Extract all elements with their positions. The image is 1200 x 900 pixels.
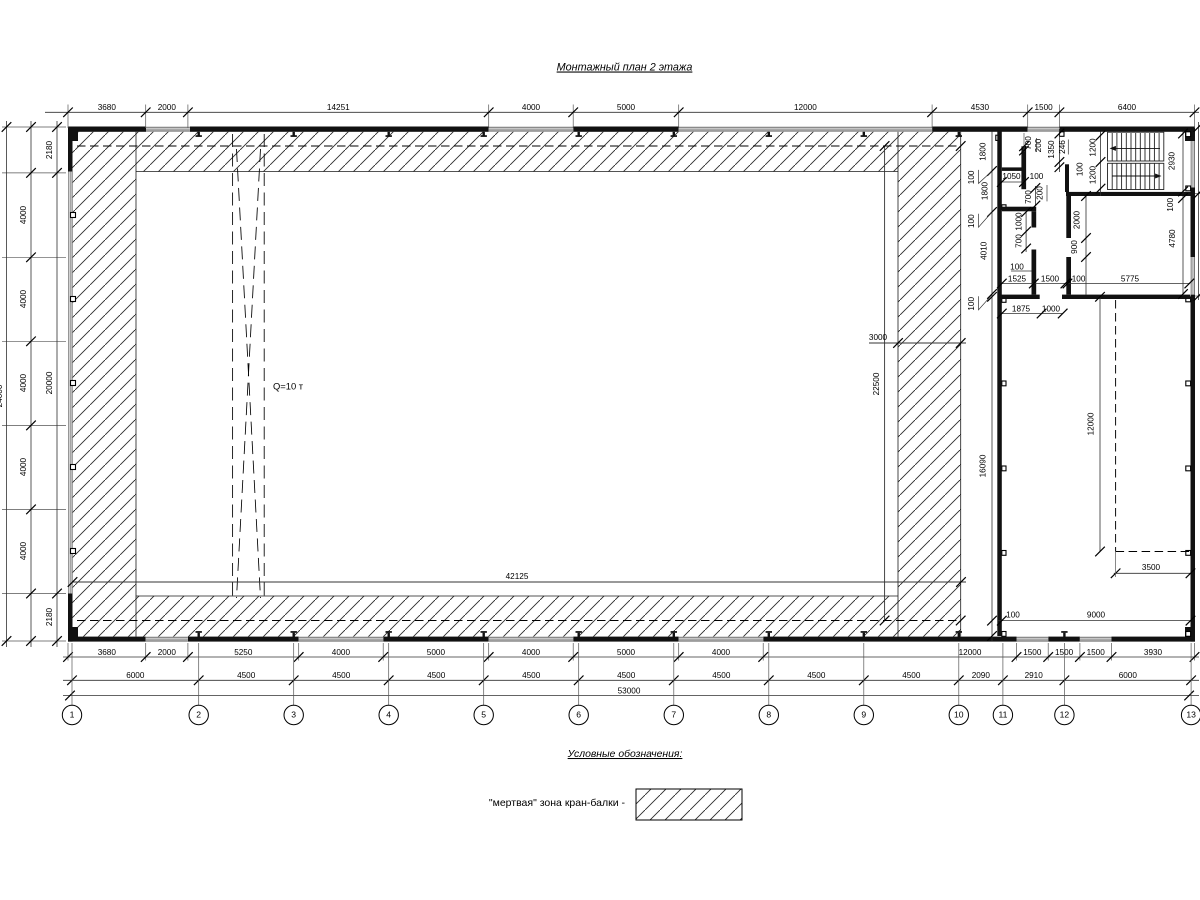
- svg-text:3: 3: [291, 710, 296, 720]
- svg-text:14251: 14251: [327, 103, 350, 112]
- svg-text:4000: 4000: [522, 648, 541, 657]
- svg-text:2000: 2000: [158, 103, 177, 112]
- svg-text:700: 700: [1024, 190, 1033, 204]
- svg-text:9: 9: [861, 710, 866, 720]
- svg-text:2000: 2000: [1073, 210, 1082, 229]
- svg-text:4500: 4500: [807, 671, 826, 680]
- svg-text:24000: 24000: [0, 384, 4, 407]
- svg-text:5: 5: [481, 710, 486, 720]
- svg-text:13: 13: [1186, 710, 1196, 720]
- svg-text:3680: 3680: [98, 103, 117, 112]
- svg-text:200: 200: [1036, 186, 1045, 200]
- svg-text:900: 900: [1070, 240, 1079, 254]
- svg-text:5000: 5000: [617, 648, 636, 657]
- svg-text:6000: 6000: [126, 671, 145, 680]
- svg-text:2180: 2180: [45, 607, 54, 626]
- svg-text:100: 100: [967, 297, 976, 311]
- svg-text:4000: 4000: [332, 648, 351, 657]
- svg-text:2000: 2000: [158, 648, 177, 657]
- svg-text:100: 100: [1030, 172, 1044, 181]
- svg-text:100: 100: [1166, 198, 1175, 212]
- svg-text:1875: 1875: [1012, 304, 1031, 313]
- svg-text:7: 7: [671, 710, 676, 720]
- svg-text:700: 700: [1015, 234, 1024, 248]
- svg-text:1000: 1000: [1015, 212, 1024, 231]
- svg-text:1: 1: [70, 710, 75, 720]
- svg-text:3000: 3000: [869, 333, 888, 342]
- svg-text:5000: 5000: [617, 103, 636, 112]
- svg-text:4000: 4000: [19, 373, 28, 392]
- svg-text:22500: 22500: [872, 372, 881, 395]
- svg-text:5775: 5775: [1121, 274, 1140, 283]
- svg-text:4000: 4000: [19, 541, 28, 560]
- svg-text:4000: 4000: [522, 103, 541, 112]
- svg-text:1500: 1500: [1041, 274, 1060, 283]
- svg-text:4500: 4500: [427, 671, 446, 680]
- svg-text:6000: 6000: [1119, 671, 1138, 680]
- svg-text:100: 100: [1072, 274, 1086, 283]
- svg-text:42125: 42125: [506, 572, 529, 581]
- svg-text:3500: 3500: [1142, 563, 1161, 572]
- svg-text:6400: 6400: [1118, 103, 1137, 112]
- svg-text:4010: 4010: [980, 241, 989, 260]
- svg-text:4500: 4500: [332, 671, 351, 680]
- svg-text:4780: 4780: [1168, 229, 1177, 248]
- svg-text:700: 700: [1024, 136, 1033, 150]
- svg-text:4500: 4500: [237, 671, 256, 680]
- svg-text:4500: 4500: [712, 671, 731, 680]
- svg-text:1500: 1500: [1034, 103, 1053, 112]
- svg-text:4000: 4000: [19, 289, 28, 308]
- svg-text:100: 100: [967, 214, 976, 228]
- svg-text:1500: 1500: [1087, 648, 1106, 657]
- svg-text:100: 100: [1006, 611, 1020, 620]
- svg-text:100: 100: [1076, 162, 1085, 176]
- svg-text:12000: 12000: [1087, 412, 1096, 435]
- svg-text:5250: 5250: [234, 648, 253, 657]
- svg-text:1050: 1050: [1002, 172, 1021, 181]
- svg-text:3680: 3680: [98, 648, 117, 657]
- svg-text:4500: 4500: [617, 671, 636, 680]
- svg-text:4530: 4530: [971, 103, 990, 112]
- svg-text:1525: 1525: [1008, 274, 1027, 283]
- svg-text:Монтажный план 2 этажа: Монтажный план 2 этажа: [557, 62, 693, 74]
- svg-text:53000: 53000: [618, 686, 641, 695]
- svg-text:1200: 1200: [1089, 138, 1098, 157]
- svg-text:2180: 2180: [45, 140, 54, 159]
- svg-text:100: 100: [1010, 263, 1024, 272]
- svg-text:1500: 1500: [1023, 648, 1042, 657]
- svg-text:Условные обозначения:: Условные обозначения:: [567, 748, 683, 760]
- svg-text:12000: 12000: [959, 648, 982, 657]
- svg-text:2930: 2930: [1168, 151, 1177, 170]
- svg-text:1000: 1000: [1042, 304, 1061, 313]
- svg-text:"мертвая" зона кран-балки -: "мертвая" зона кран-балки -: [489, 797, 626, 809]
- svg-text:9000: 9000: [1087, 611, 1106, 620]
- svg-text:1800: 1800: [981, 181, 990, 200]
- svg-text:2090: 2090: [972, 671, 991, 680]
- svg-text:11: 11: [998, 710, 1007, 720]
- svg-text:Q=10 т: Q=10 т: [273, 381, 304, 392]
- svg-text:3930: 3930: [1144, 648, 1163, 657]
- svg-text:4500: 4500: [902, 671, 921, 680]
- svg-text:1350: 1350: [1047, 140, 1056, 159]
- svg-text:100: 100: [967, 170, 976, 184]
- svg-text:6: 6: [576, 710, 581, 720]
- svg-text:4000: 4000: [19, 205, 28, 224]
- svg-text:200: 200: [1034, 138, 1043, 152]
- svg-text:1200: 1200: [1089, 165, 1098, 184]
- svg-text:16090: 16090: [979, 454, 988, 477]
- svg-text:20000: 20000: [45, 371, 54, 394]
- svg-text:246: 246: [1058, 140, 1067, 154]
- svg-text:10: 10: [954, 710, 964, 720]
- svg-text:4000: 4000: [19, 457, 28, 476]
- svg-text:4000: 4000: [712, 648, 731, 657]
- svg-text:4500: 4500: [522, 671, 541, 680]
- svg-text:8: 8: [766, 710, 771, 720]
- svg-text:2910: 2910: [1025, 671, 1044, 680]
- svg-text:5000: 5000: [427, 648, 446, 657]
- svg-text:12000: 12000: [794, 103, 817, 112]
- svg-text:2: 2: [196, 710, 201, 720]
- svg-text:1800: 1800: [978, 142, 987, 161]
- svg-text:4: 4: [386, 710, 391, 720]
- svg-text:12: 12: [1060, 710, 1070, 720]
